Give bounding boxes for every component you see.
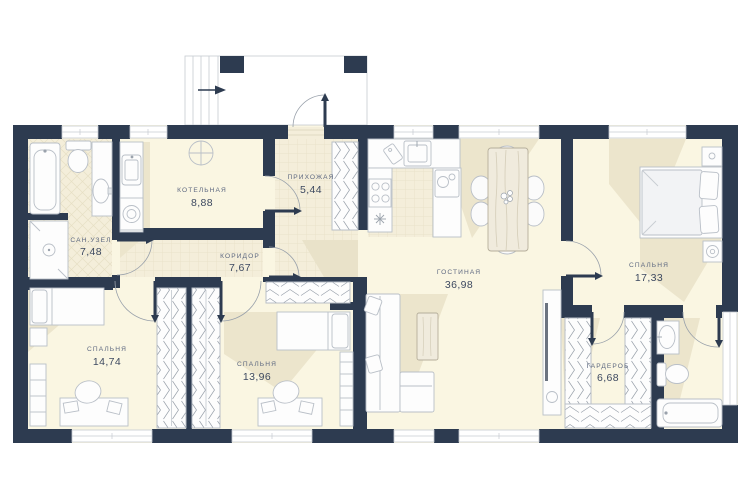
svg-text:КОТЕЛЬНАЯ: КОТЕЛЬНАЯ (177, 187, 227, 194)
svg-text:ГОСТИНАЯ: ГОСТИНАЯ (437, 269, 481, 276)
closet-bedroom-left (157, 288, 186, 428)
label-spalnya-left: СПАЛЬНЯ 14,74 (87, 346, 127, 368)
svg-text:ПРИХОЖАЯ: ПРИХОЖАЯ (287, 174, 334, 181)
wall-living-bedroom-master (561, 139, 573, 241)
svg-text:САН.УЗЕЛ: САН.УЗЕЛ (70, 237, 111, 244)
coffee-table (417, 313, 438, 360)
svg-text:13,96: 13,96 (243, 371, 271, 383)
svg-text:ГАРДЕРОБ: ГАРДЕРОБ (587, 363, 630, 370)
floor-plan-svg: КОТЕЛЬНАЯ 8,88 ПРИХОЖАЯ 5,44 САН.УЗЕЛ 7,… (0, 0, 752, 502)
wall-boiler-east-lower (263, 211, 275, 248)
svg-text:7,67: 7,67 (229, 262, 251, 274)
svg-text:КОРИДОР: КОРИДОР (220, 253, 260, 260)
shower (30, 221, 68, 279)
svg-text:СПАЛЬНЯ: СПАЛЬНЯ (237, 361, 277, 368)
porch-pillar-right (344, 56, 367, 73)
svg-text:СПАЛЬНЯ: СПАЛЬНЯ (629, 262, 669, 269)
closet-bedroom-mid-top (266, 282, 350, 303)
svg-text:17,33: 17,33 (635, 272, 663, 284)
nightstand-left-room (30, 328, 47, 346)
garderob-rack-left (565, 318, 591, 404)
wall-boiler-east-upper (263, 139, 275, 176)
svg-text:7,48: 7,48 (80, 246, 102, 258)
porch-pillar-left (220, 56, 244, 73)
boiler-unit (435, 170, 459, 197)
kitchen-sink (404, 141, 431, 166)
bed-mid (277, 312, 350, 350)
stove (369, 179, 391, 207)
bed-left (30, 288, 104, 325)
wall-hall-kitchen (358, 139, 368, 230)
dresser-left-room (30, 364, 46, 426)
ceiling-lamp (189, 141, 213, 165)
garderob-rack-right (625, 318, 651, 404)
master-bed (640, 167, 722, 238)
tv-console (543, 290, 561, 415)
bathtub (30, 143, 60, 214)
garderob-drawers (565, 404, 651, 428)
svg-text:36,98: 36,98 (445, 279, 473, 291)
porch (185, 56, 367, 125)
svg-text:6,68: 6,68 (597, 372, 619, 384)
svg-text:14,74: 14,74 (93, 356, 121, 368)
svg-text:5,44: 5,44 (300, 184, 322, 196)
nightstand-top (702, 147, 722, 166)
washbasin-2 (657, 321, 679, 354)
label-spalnya-master: СПАЛЬНЯ 17,33 (629, 262, 669, 284)
wall-between-closets (186, 281, 192, 429)
closet-bedroom-mid (192, 288, 220, 428)
wall-bath-boiler (112, 139, 120, 240)
label-spalnya-mid: СПАЛЬНЯ 13,96 (237, 361, 277, 383)
nightstand-bottom (703, 241, 722, 262)
hall-closet (332, 142, 358, 230)
washbasin-cabinet (92, 142, 112, 216)
dining-table (488, 148, 528, 251)
bathtub-2 (657, 399, 722, 427)
washing-machine (120, 198, 143, 230)
radiator-mid-room (340, 352, 353, 426)
entrance-threshold (288, 127, 324, 139)
svg-text:8,88: 8,88 (191, 197, 213, 209)
svg-text:СПАЛЬНЯ: СПАЛЬНЯ (87, 346, 127, 353)
floor-plan: КОТЕЛЬНАЯ 8,88 ПРИХОЖАЯ 5,44 САН.УЗЕЛ 7,… (0, 0, 752, 502)
wall-living-bedroom-mid (353, 277, 367, 429)
